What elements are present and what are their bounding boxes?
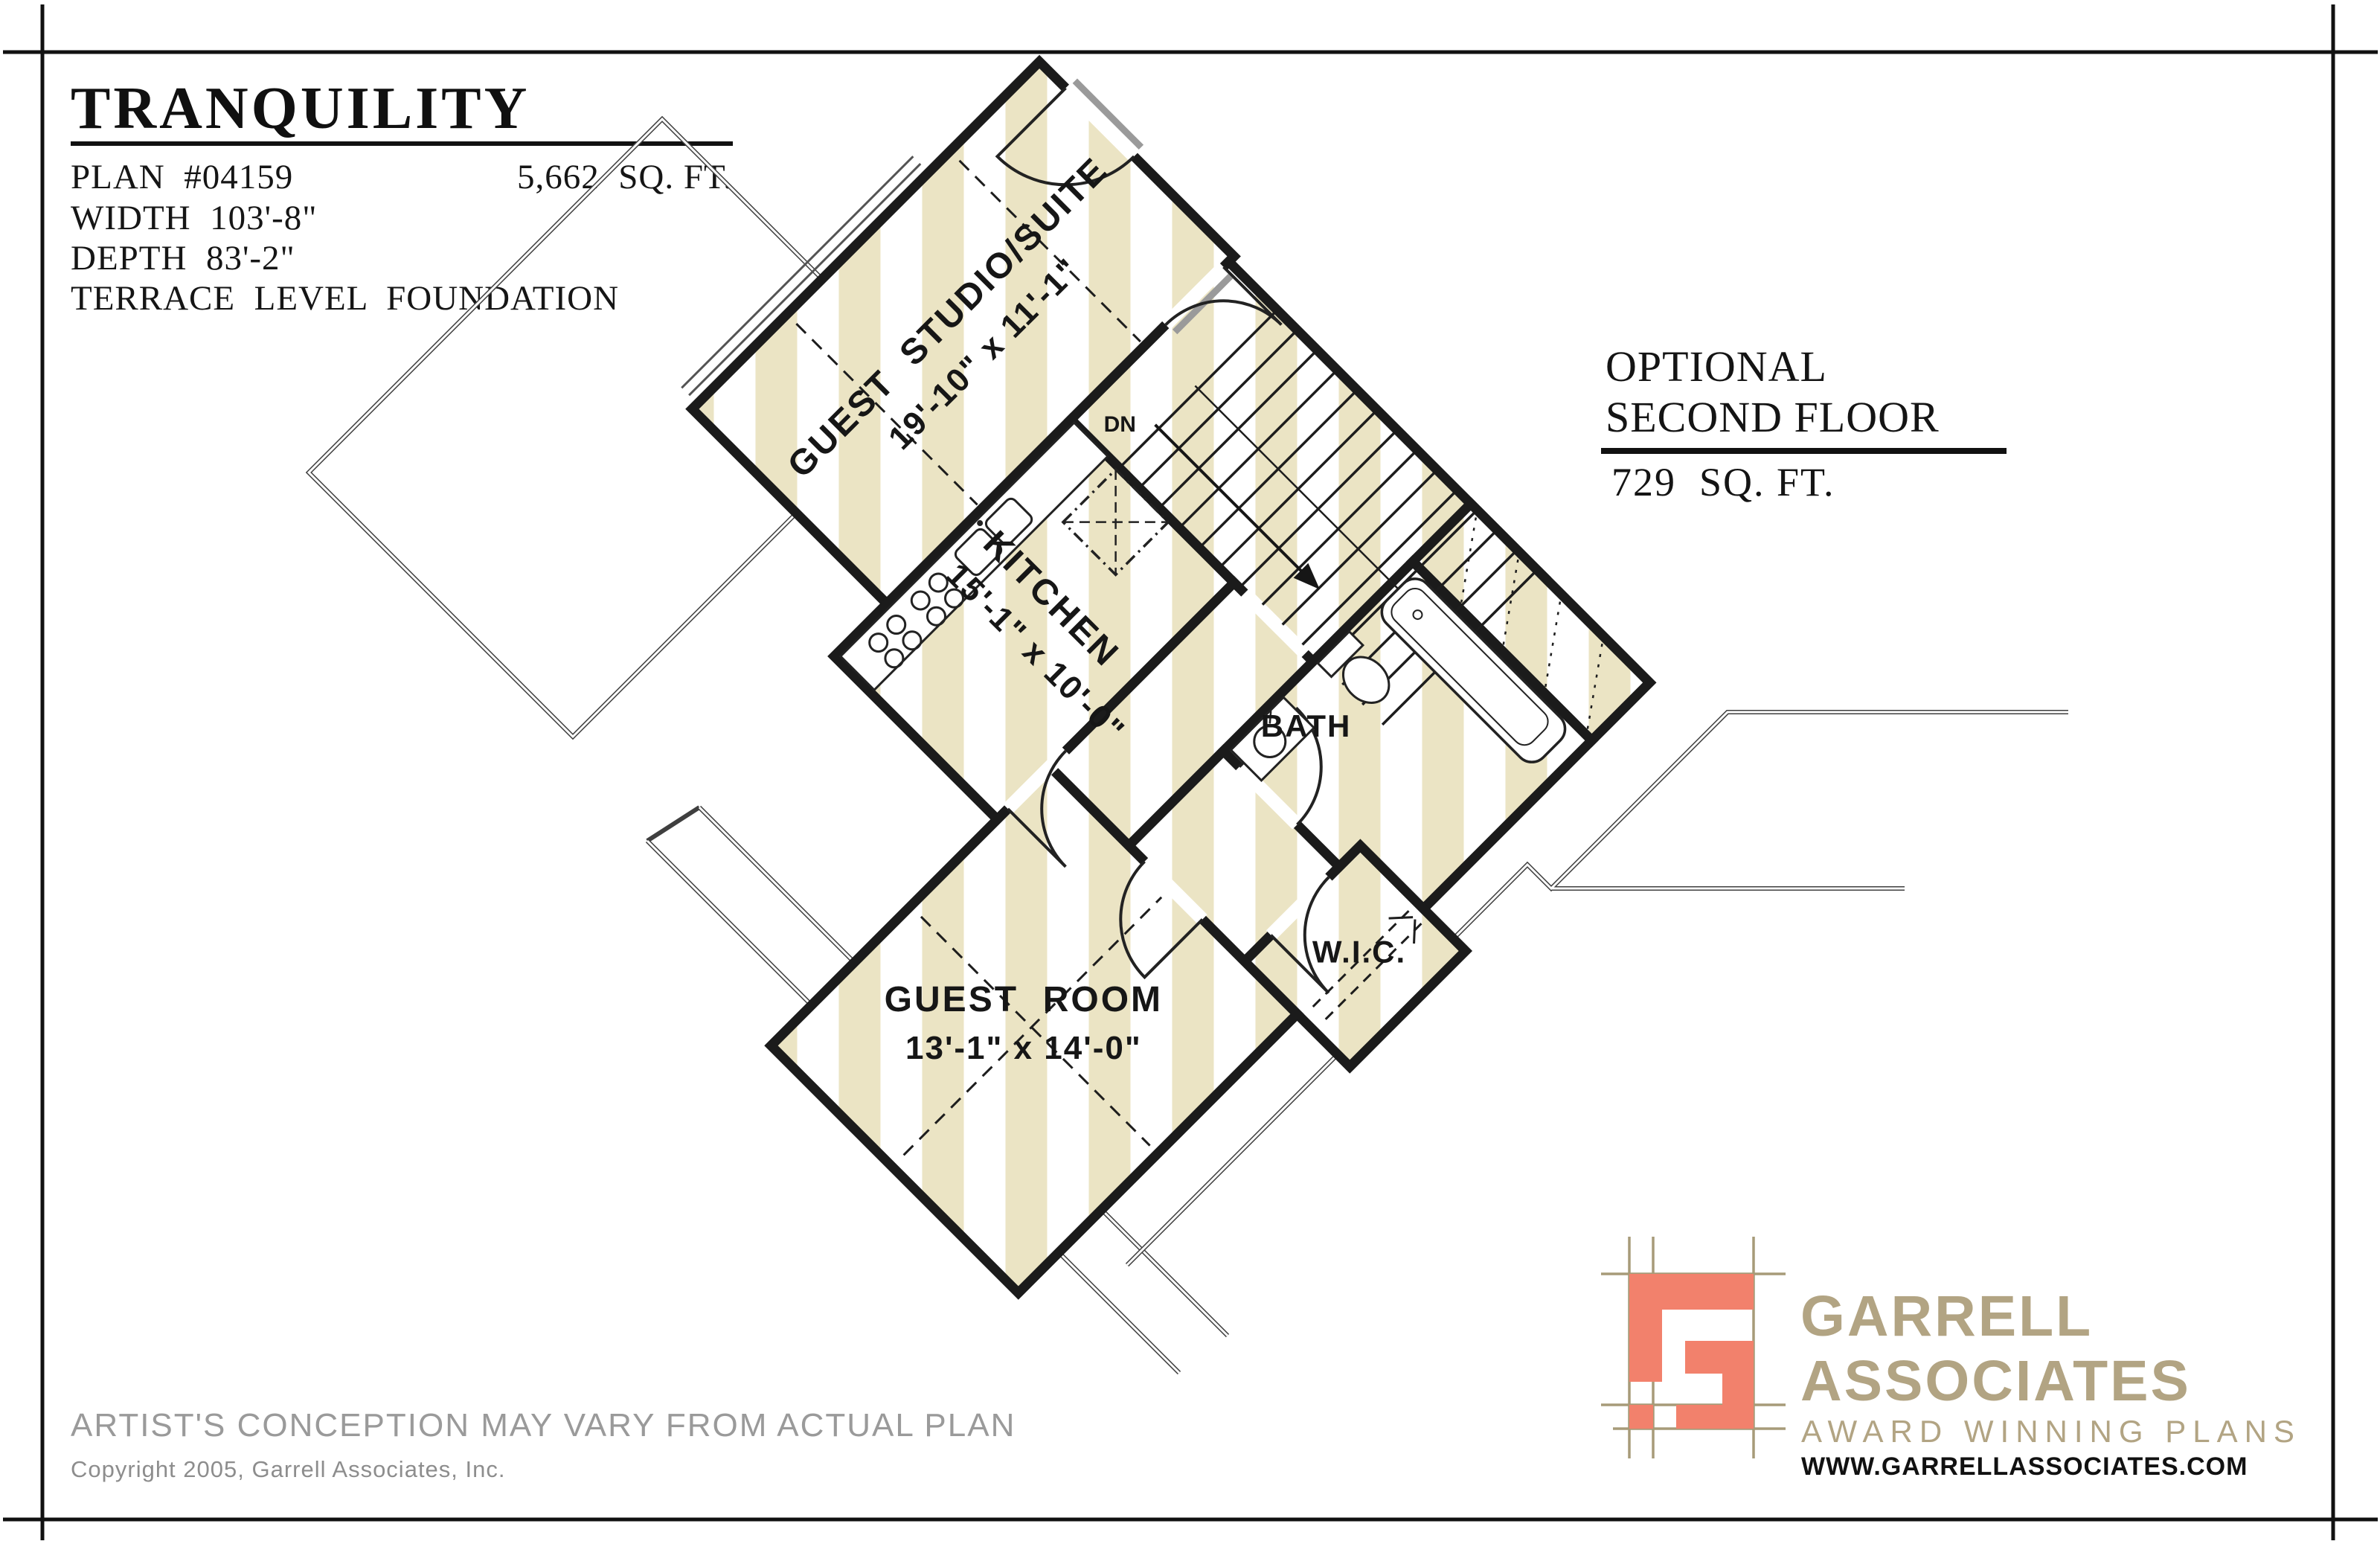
floor-label-line1: OPTIONAL: [1606, 342, 1827, 391]
label-guest-room: GUEST ROOM: [885, 980, 1163, 1019]
g-bottom-foot: [1629, 1405, 1653, 1429]
title-block: TRANQUILITY PLAN #04159 5,662 SQ. FT. WI…: [71, 76, 733, 318]
foundation-type: TERRACE LEVEL FOUNDATION: [71, 279, 619, 318]
label-wic: W.I.C.: [1312, 934, 1406, 969]
label-guest-room-dims: 13'-1" x 14'-0": [905, 1030, 1142, 1066]
plan-sheet: TRANQUILITY PLAN #04159 5,662 SQ. FT. WI…: [0, 0, 2380, 1544]
page-title: TRANQUILITY: [71, 76, 530, 141]
plan-width: WIDTH 103'-8": [71, 199, 317, 237]
floor-area: 729 SQ. FT.: [1611, 460, 1835, 504]
plan-number: PLAN #04159: [71, 158, 293, 196]
logo-website: WWW.GARRELLASSOCIATES.COM: [1801, 1452, 2248, 1481]
floor-plan: DN: [397, 36, 1707, 1346]
garrell-logo: GARRELL ASSOCIATES AWARD WINNING PLANS W…: [1601, 1237, 2301, 1481]
g-bottom-bar: [1676, 1405, 1754, 1429]
plan-sheet-canvas: TRANQUILITY PLAN #04159 5,662 SQ. FT. WI…: [0, 0, 2380, 1544]
floor-label-underline: [1601, 448, 2007, 454]
disclaimer-text: ARTIST'S CONCEPTION MAY VARY FROM ACTUAL…: [71, 1407, 1016, 1444]
logo-name-line2: ASSOCIATES: [1800, 1349, 2191, 1413]
floor-info-block: OPTIONAL SECOND FLOOR 729 SQ. FT.: [1601, 342, 2007, 504]
logo-g-mark: [1629, 1274, 1754, 1429]
floor-label-line2: SECOND FLOOR: [1606, 393, 1940, 441]
footer: ARTIST'S CONCEPTION MAY VARY FROM ACTUAL…: [71, 1407, 1016, 1482]
g-left-bar: [1629, 1274, 1662, 1382]
stair-down-label: DN: [1104, 412, 1136, 437]
logo-name-line1: GARRELL: [1800, 1284, 2093, 1348]
copyright-text: Copyright 2005, Garrell Associates, Inc.: [71, 1456, 505, 1482]
plan-depth: DEPTH 83'-2": [71, 239, 295, 278]
label-bath: BATH: [1261, 708, 1352, 743]
total-sqft: 5,662 SQ. FT.: [517, 158, 733, 196]
logo-tagline: AWARD WINNING PLANS: [1801, 1414, 2301, 1449]
